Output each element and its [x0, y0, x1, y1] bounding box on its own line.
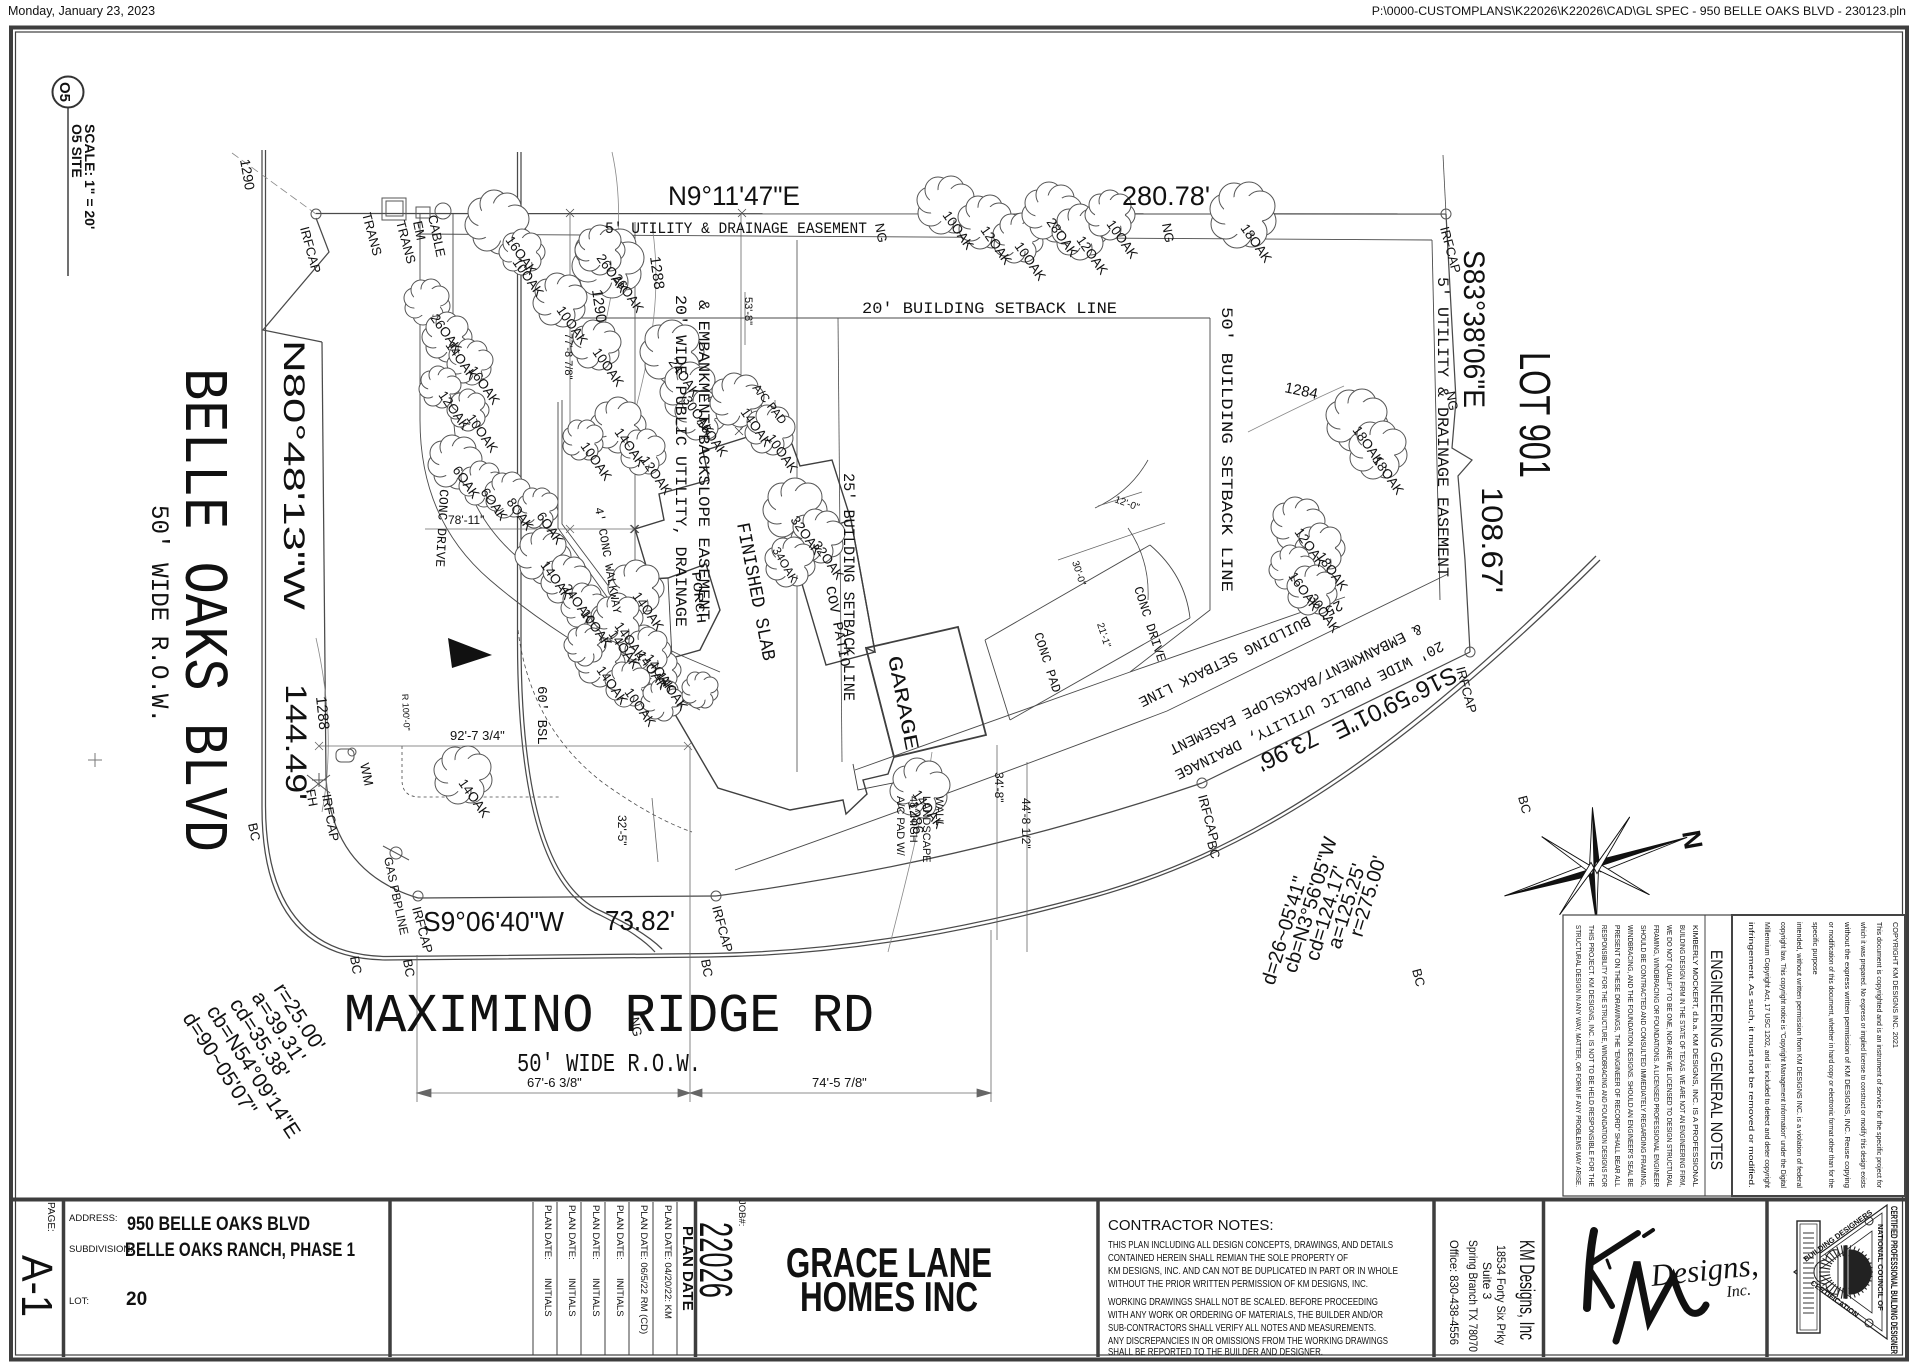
svg-text:WITH ANY WORK OR ORDERING OF M: WITH ANY WORK OR ORDERING OF MATERIALS, … — [1108, 1310, 1383, 1321]
svg-text:INITIALS: INITIALS — [542, 1278, 553, 1317]
svg-text:CERTIFIED PROFESSIONAL BUILDIN: CERTIFIED PROFESSIONAL BUILDING DESIGNER — [1889, 1206, 1899, 1354]
svg-text:20: 20 — [126, 1289, 147, 1310]
svg-text:280.78': 280.78' — [1122, 181, 1210, 211]
svg-text:N80°48'13"W: N80°48'13"W — [277, 340, 310, 611]
svg-text:BC: BC — [400, 958, 418, 978]
svg-text:BUILDING DESIGN FIRM IN THE ST: BUILDING DESIGN FIRM IN THE STATE OF TEX… — [1678, 925, 1687, 1187]
svg-text:34'-8": 34'-8" — [992, 772, 1006, 803]
svg-text:O5: O5 — [56, 82, 73, 102]
svg-text:SHOULD BE CONTRACTED AND CONSU: SHOULD BE CONTRACTED AND CONSULTED IMMED… — [1639, 925, 1648, 1187]
svg-text:R 100'-0": R 100'-0" — [400, 694, 412, 731]
svg-text:1288: 1288 — [312, 696, 332, 731]
svg-text:STRUCTURAL DESIGN IN ANY WAY,: STRUCTURAL DESIGN IN ANY WAY, MATTER, OR… — [1574, 925, 1583, 1187]
svg-text:BC: BC — [347, 955, 365, 975]
svg-text:PLAN DATE: 06/5/22 RM (CD): PLAN DATE: 06/5/22 RM (CD) — [638, 1205, 649, 1334]
svg-text:SUB-CONTRACTORS SHALL VERIFY A: SUB-CONTRACTORS SHALL VERIFY ALL NOTES A… — [1108, 1323, 1376, 1334]
svg-text:WE DO NOT QUALIFY TO BE ONE, N: WE DO NOT QUALIFY TO BE ONE, NOR ARE WE … — [1665, 925, 1674, 1187]
svg-text:MAXIMINO RIDGE RD: MAXIMINO RIDGE RD — [344, 985, 874, 1048]
svg-text:22026: 22026 — [690, 1222, 742, 1298]
svg-text:PLAN DATE:: PLAN DATE: — [590, 1205, 601, 1260]
svg-text:PRESENT ON THESE DRAWINGS, THE: PRESENT ON THESE DRAWINGS, THE "ENGINEER… — [1613, 925, 1622, 1187]
svg-text:WITHOUT THE PRIOR WRITTEN PERM: WITHOUT THE PRIOR WRITTEN PERMISSION OF … — [1108, 1279, 1368, 1290]
svg-text:PLAN DATE:: PLAN DATE: — [542, 1205, 553, 1260]
svg-text:PLAN DATE:: PLAN DATE: — [614, 1205, 625, 1260]
svg-text:32'-5": 32'-5" — [615, 815, 629, 846]
svg-text:108.67': 108.67' — [1475, 487, 1508, 593]
svg-text:infringement. As such, it must: infringement. As such, it must not be re… — [1747, 922, 1756, 1188]
svg-text:COPYRIGHT KM DESIGNS INC. 20: COPYRIGHT KM DESIGNS INC. 2021 — [1891, 922, 1900, 1048]
svg-text:BELLE OAKS BLVD: BELLE OAKS BLVD — [167, 368, 238, 852]
svg-text:PLAN DATE:: PLAN DATE: — [566, 1205, 577, 1260]
svg-text:PAGE:: PAGE: — [45, 1202, 56, 1232]
svg-text:INITIALS: INITIALS — [566, 1278, 577, 1317]
svg-text:FRAMING, WINDBRACING OR FOUNDA: FRAMING, WINDBRACING OR FOUNDATIONS. A L… — [1652, 925, 1661, 1187]
svg-text:67'-6 3/8": 67'-6 3/8" — [527, 1075, 582, 1090]
svg-text:Suite 3: Suite 3 — [1480, 1262, 1494, 1300]
svg-text:WALL: WALL — [933, 796, 945, 826]
svg-text:144.49': 144.49' — [279, 684, 312, 800]
svg-text:INITIALS: INITIALS — [590, 1278, 601, 1317]
svg-text:S83°38'06"E: S83°38'06"E — [1457, 250, 1490, 408]
svg-text:73.82': 73.82' — [605, 905, 675, 936]
svg-text:WINDBRACING, AND THE FOUNDATIO: WINDBRACING, AND THE FOUNDATION DESIGNS.… — [1626, 925, 1635, 1187]
svg-text:74'-5 7/8": 74'-5 7/8" — [812, 1075, 867, 1090]
svg-text:SCALE: 1" = 20': SCALE: 1" = 20' — [82, 124, 98, 229]
svg-text:WORKING DRAWINGS SHALL NOT BE: WORKING DRAWINGS SHALL NOT BE SCALED. BE… — [1108, 1297, 1378, 1308]
svg-text:SUBDIVISION:: SUBDIVISION: — [69, 1244, 133, 1255]
svg-text:without the express written pe: without the express written permission o… — [1843, 921, 1852, 1188]
svg-text:950 BELLE OAKS BLVD: 950 BELLE OAKS BLVD — [127, 1214, 310, 1235]
svg-text:THIS PROJECT. KM DESIGNS, INC: THIS PROJECT. KM DESIGNS, INC. IS NOT TO… — [1587, 925, 1596, 1187]
svg-text:Office: 830-438-4556: Office: 830-438-4556 — [1447, 1240, 1461, 1345]
svg-text:FH: FH — [303, 788, 321, 808]
svg-text:KM DESIGNS, INC. AND CAN NOT: KM DESIGNS, INC. AND CAN NOT BE DUPLICAT… — [1108, 1266, 1398, 1277]
svg-text:or modification of this docume: or modification of this document, whethe… — [1827, 922, 1836, 1188]
svg-text:NATIONAL COUNCIL OF: NATIONAL COUNCIL OF — [1876, 1224, 1885, 1311]
svg-text:LOT:: LOT: — [69, 1296, 89, 1307]
svg-text:92'-7 3/4": 92'-7 3/4" — [450, 728, 505, 743]
svg-text:20' BUILDING SETBACK LINE: 20' BUILDING SETBACK LINE — [862, 300, 1117, 318]
svg-text:SHALL BE REPORTED TO THE BUILD: SHALL BE REPORTED TO THE BUILDER AND DES… — [1108, 1347, 1323, 1358]
svg-text:KIMBERLY MOCKERT, d.b.a. KM DE: KIMBERLY MOCKERT, d.b.a. KM DESIGNS, INC… — [1691, 925, 1700, 1187]
svg-text:ENGINEERING GENERAL NOTES: ENGINEERING GENERAL NOTES — [1707, 950, 1726, 1170]
svg-text:which it was prepared. No expr: which it was prepared. No express or imp… — [1859, 921, 1868, 1188]
svg-text:KM Designs, Inc: KM Designs, Inc — [1515, 1240, 1538, 1340]
svg-text:BC: BC — [698, 958, 716, 978]
svg-text:A-1: A-1 — [12, 1255, 61, 1317]
svg-text:Inc.: Inc. — [1725, 1282, 1752, 1302]
svg-text:Monday, January 23, 2023: Monday, January 23, 2023 — [8, 4, 155, 18]
svg-text:CONTAINED HEREIN SHALL REMIAN: CONTAINED HEREIN SHALL REMIAN THE SOLE P… — [1108, 1253, 1348, 1264]
svg-text:THIS PLAN INCLUDING ALL DESIGN: THIS PLAN INCLUDING ALL DESIGN CONCEPTS,… — [1108, 1240, 1393, 1251]
svg-text:ADDRESS:: ADDRESS: — [69, 1213, 118, 1224]
svg-text:PLAN DATE: 04/20/22: KM: PLAN DATE: 04/20/22: KM — [662, 1205, 673, 1319]
svg-text:Millennium Copyright Act, 17 U: Millennium Copyright Act, 17 USC 1202, a… — [1763, 922, 1772, 1188]
svg-text:HOMES INC: HOMES INC — [800, 1273, 978, 1320]
svg-text:5' UTILITY & DRAINAGE EASEMENT: 5' UTILITY & DRAINAGE EASEMENT — [605, 220, 867, 238]
svg-text:A/C PAD W/: A/C PAD W/ — [894, 796, 906, 857]
svg-text:P:\0000-CUSTOMPLANS\K22026\K22: P:\0000-CUSTOMPLANS\K22026\K22026\CAD\GL… — [1372, 4, 1906, 18]
svg-text:53'-8": 53'-8" — [742, 297, 754, 325]
svg-text:ANY DISCREPANCIES IN OR OMISSI: ANY DISCREPANCIES IN OR OMISSIONS FROM T… — [1108, 1336, 1388, 1347]
svg-text:60' BSL: 60' BSL — [533, 686, 549, 745]
svg-text:20' WIDE PUBLIC UTILITY, DRAIN: 20' WIDE PUBLIC UTILITY, DRAINAGE — [671, 295, 689, 627]
svg-text:18534 Forty Six Prky: 18534 Forty Six Prky — [1494, 1245, 1508, 1345]
svg-text:44'-8 1/2": 44'-8 1/2" — [1019, 798, 1033, 849]
svg-text:50' BUILDING SETBACK LINE: 50' BUILDING SETBACK LINE — [1217, 307, 1235, 592]
svg-text:Spring Branch TX 78070: Spring Branch TX 78070 — [1466, 1240, 1480, 1352]
svg-text:77'-8 7/8": 77'-8 7/8" — [562, 333, 574, 379]
svg-text:specific purpose: specific purpose — [1811, 922, 1820, 975]
svg-text:INITIALS: INITIALS — [614, 1278, 625, 1317]
svg-text:BELLE OAKS RANCH, PHASE 1: BELLE OAKS RANCH, PHASE 1 — [125, 1240, 355, 1261]
svg-text:S9°06'40"W: S9°06'40"W — [423, 906, 565, 937]
svg-text:78'-11": 78'-11" — [448, 513, 484, 527]
svg-text:LOT 901: LOT 901 — [1510, 352, 1559, 478]
svg-text:This document is copyrighted a: This document is copyrighted and is an i… — [1875, 922, 1884, 1189]
svg-text:5' UTILITY & DRAINAGE EASEMENT: 5' UTILITY & DRAINAGE EASEMENT — [1433, 277, 1451, 577]
svg-text:RESPONSIBILITY FOR THE STRUCTU: RESPONSIBILITY FOR THE STRUCTURE, WINDBR… — [1600, 925, 1609, 1187]
svg-text:50' WIDE R.O.W.: 50' WIDE R.O.W. — [144, 505, 173, 723]
svg-text:intended, without written perm: intended, without written permission fro… — [1795, 922, 1804, 1188]
svg-text:copyright law. This copyright: copyright law. This copyright notice is … — [1779, 922, 1788, 1188]
svg-text:N9°11'47"E: N9°11'47"E — [668, 181, 800, 211]
svg-text:CONTRACTOR NOTES:: CONTRACTOR NOTES: — [1108, 1217, 1274, 1234]
